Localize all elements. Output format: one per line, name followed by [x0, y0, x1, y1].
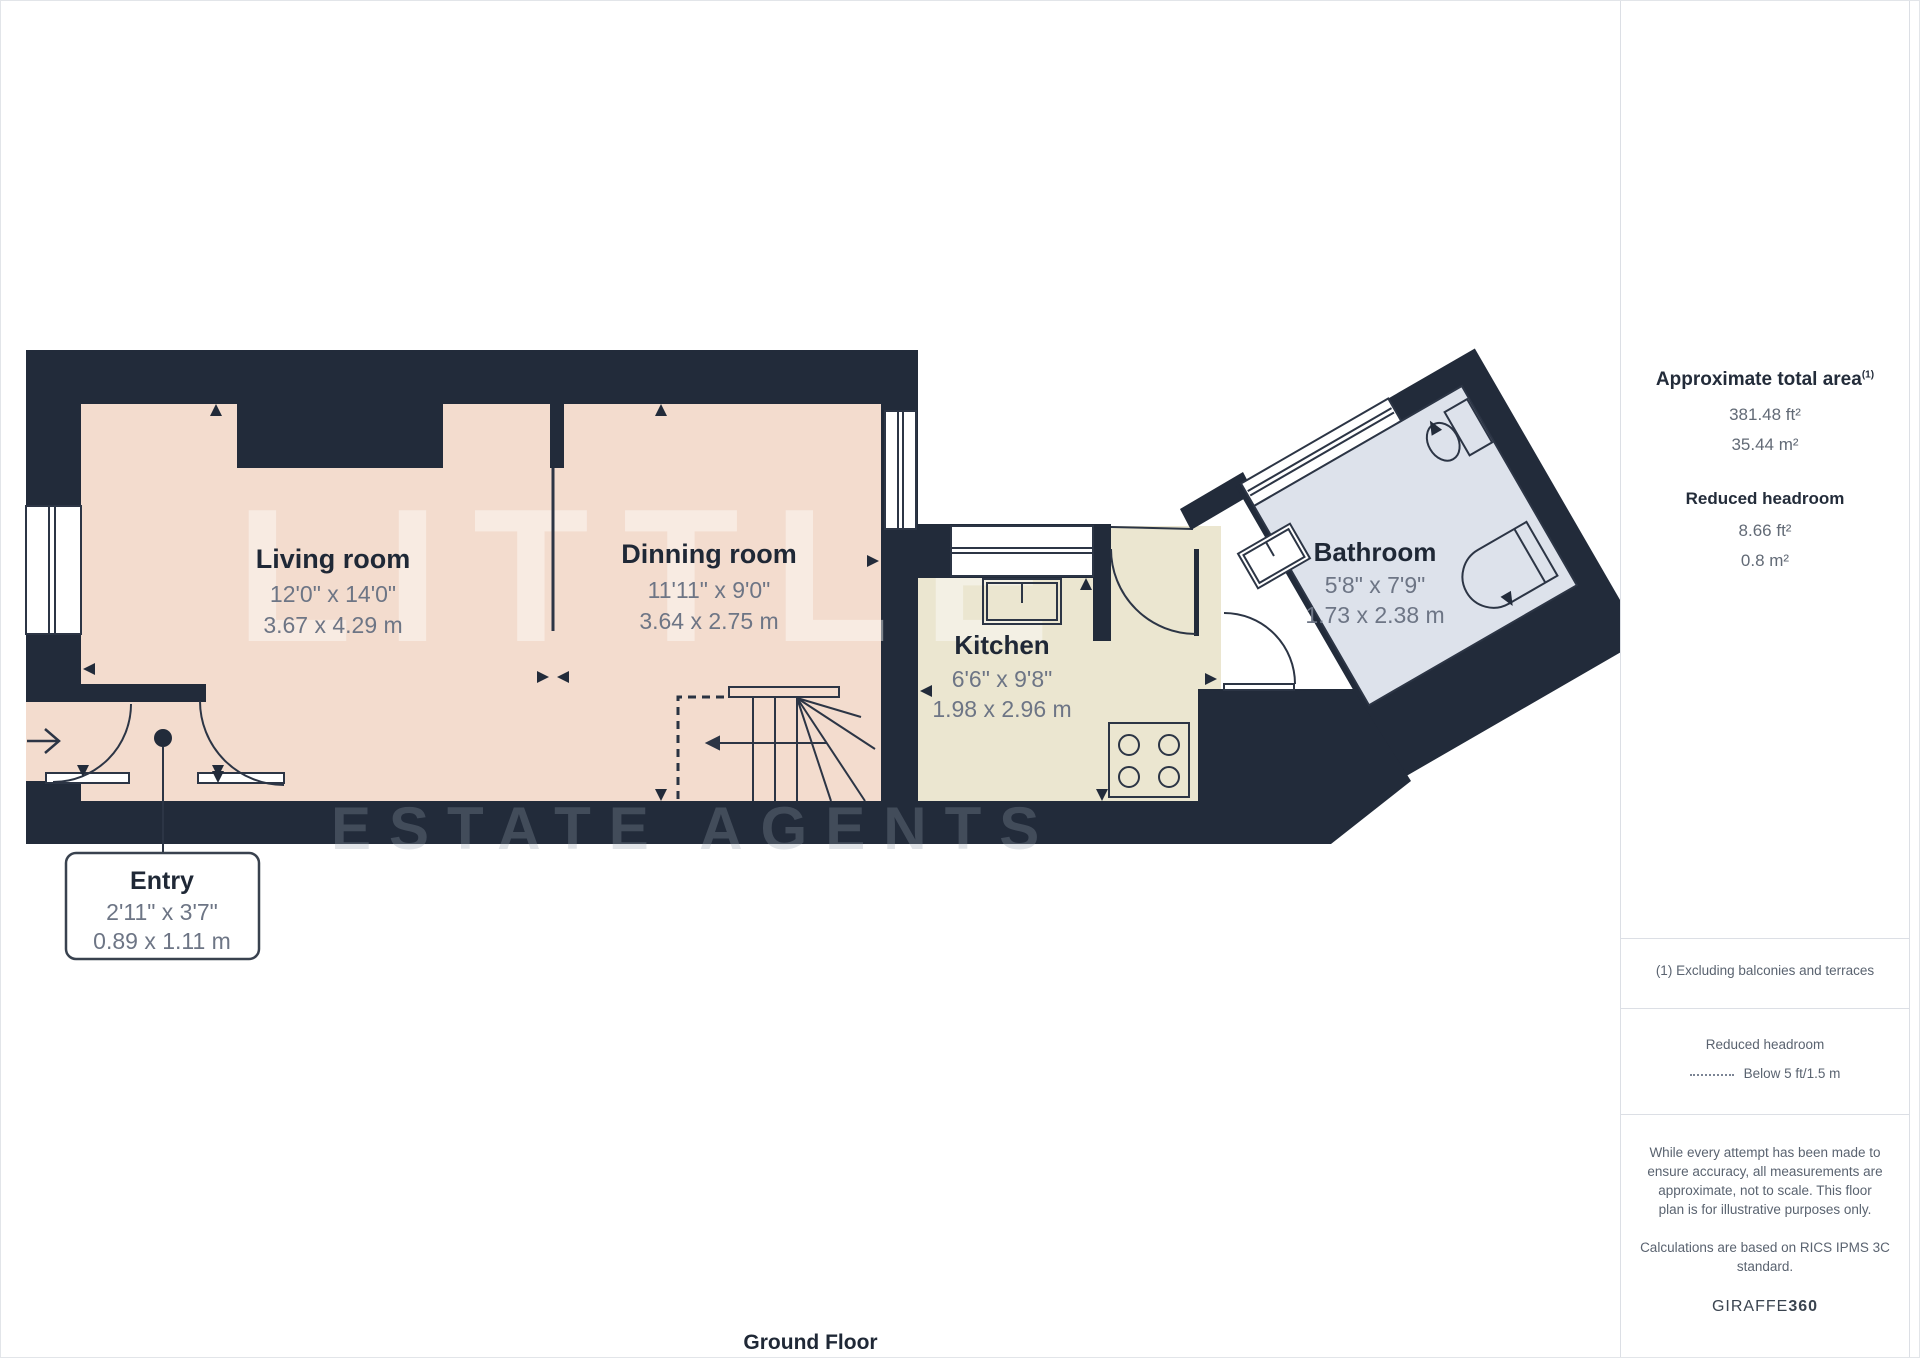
sidebar-divider [1621, 1008, 1909, 1009]
bathroom-dims-m: 1.73 x 2.38 m [1305, 602, 1444, 628]
kitchen-dims-ft: 6'6" x 9'8" [952, 666, 1053, 692]
reduced-headroom-ft: 8.66 ft² [1621, 521, 1909, 541]
info-sidebar: Approximate total area(1) 381.48 ft² 35.… [1620, 1, 1910, 1357]
threshold-right [198, 773, 284, 783]
area-summary: Approximate total area(1) 381.48 ft² 35.… [1621, 369, 1909, 581]
approx-area-title: Approximate total area(1) [1621, 369, 1909, 391]
legend-title: Reduced headroom [1621, 1037, 1909, 1052]
corridor-upper-wall [1180, 472, 1254, 530]
bathroom-label: Bathroom [1314, 537, 1437, 567]
legend-item: Below 5 ft/1.5 m [1744, 1066, 1841, 1081]
living-room-dims-m: 3.67 x 4.29 m [263, 612, 402, 638]
floorplan-drawing: LITTLE ESTATE AGENTS [1, 1, 1620, 1357]
floorplan-page: LITTLE ESTATE AGENTS [0, 0, 1920, 1358]
dinning-room-dims-m: 3.64 x 2.75 m [639, 608, 778, 634]
top-block-overlay [237, 350, 443, 468]
reduced-headroom-legend-line [1690, 1073, 1734, 1076]
entry-dims-m: 0.89 x 1.11 m [93, 928, 231, 954]
disclaimer-line: plan is for illustrative purposes only. [1621, 1200, 1909, 1219]
reduced-headroom-m: 0.8 m² [1621, 551, 1909, 571]
reduced-headroom-title: Reduced headroom [1621, 489, 1909, 509]
disclaimer-line: approximate, not to scale. This floor [1621, 1181, 1909, 1200]
dinning-room-label: Dinning room [621, 539, 796, 569]
entry-marker-dot [154, 729, 172, 747]
kitchen-window [951, 526, 1093, 576]
sidebar-divider [1621, 1114, 1909, 1115]
calc-line: Calculations are based on RICS IPMS 3C [1621, 1238, 1909, 1257]
entry-dims-ft: 2'11" x 3'7" [106, 899, 218, 925]
legend-section: Reduced headroom Below 5 ft/1.5 m [1621, 1037, 1909, 1081]
kitchen-label: Kitchen [954, 630, 1049, 660]
watermark-line2: ESTATE AGENTS [331, 795, 1057, 862]
sidebar-divider [1621, 938, 1909, 939]
disclaimer-line: ensure accuracy, all measurements are [1621, 1162, 1909, 1181]
living-room-window [26, 506, 81, 634]
disclaimer-line: While every attempt has been made to [1621, 1143, 1909, 1162]
giraffe360-logo: GIRAFFE360 [1621, 1297, 1909, 1316]
bathroom-door [1224, 613, 1295, 690]
living-room-label: Living room [256, 544, 411, 574]
footnote-marker: (1) [1862, 370, 1874, 381]
dinning-room-window [885, 411, 916, 529]
excluding-note: (1) Excluding balconies and terraces [1621, 963, 1909, 978]
dinning-room-dims-ft: 11'11" x 9'0" [648, 577, 771, 603]
disclaimer-section: While every attempt has been made to ens… [1621, 1143, 1909, 1316]
bathroom-dims-ft: 5'8" x 7'9" [1325, 572, 1426, 598]
top-stub-overlay [550, 350, 564, 468]
approx-area-m: 35.44 m² [1621, 435, 1909, 455]
floor-label: Ground Floor [1, 1331, 1620, 1355]
approx-area-ft: 381.48 ft² [1621, 405, 1909, 425]
kitchen-dims-m: 1.98 x 2.96 m [932, 696, 1071, 722]
entry-label: Entry [130, 867, 194, 895]
calculations-note: Calculations are based on RICS IPMS 3C s… [1621, 1238, 1909, 1276]
living-room-dims-ft: 12'0" x 14'0" [270, 581, 396, 607]
entry-callout: Entry 2'11" x 3'7" 0.89 x 1.11 m [66, 853, 259, 959]
calc-line: standard. [1621, 1257, 1909, 1276]
